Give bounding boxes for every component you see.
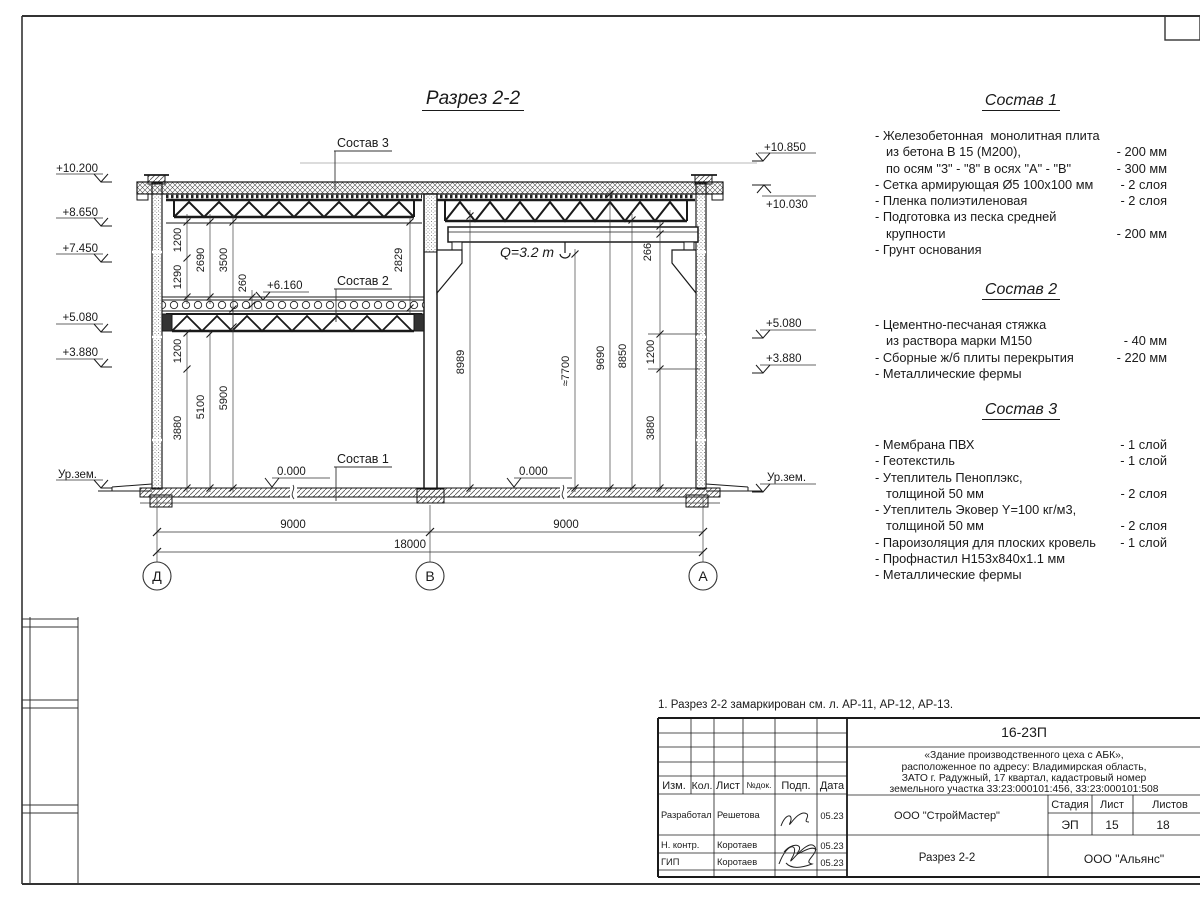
elevation-mark: Ур.зем.	[752, 472, 816, 492]
drawing-title: Разрез 2-2	[378, 88, 568, 110]
hollow-core-slab	[162, 300, 424, 311]
elevation-mark: +10.030	[752, 185, 816, 211]
elevation-mark: +5.080	[56, 312, 112, 332]
list-item: толщиной 50 мм- 2 слоя	[875, 518, 1167, 534]
roof-slab	[137, 182, 723, 194]
footing-right	[686, 495, 708, 507]
axis-bubbles: Д В А	[143, 562, 717, 590]
svg-text:+7.450: +7.450	[63, 243, 99, 255]
list-item: - Железобетонная монолитная плита	[875, 128, 1167, 144]
mezzanine-truss	[162, 314, 424, 331]
elevation-mark: +3.880	[56, 347, 112, 367]
project-desc-line: ЗАТО г. Радужный, 17 квартал, кадастровы…	[902, 773, 1147, 784]
list-item: - Сборные ж/б плиты перекрытия- 220 мм	[875, 350, 1167, 366]
axis-label-a: А	[698, 568, 708, 584]
corbel-right	[672, 250, 696, 293]
dims-bottom: 9000 9000 18000	[153, 497, 707, 562]
svg-text:8850: 8850	[617, 344, 629, 368]
title-block: 16-23П «Здание производственного цеха с …	[658, 718, 1200, 877]
sostav-3-list: - Мембрана ПВХ- 1 слой - Геотекстиль- 1 …	[875, 437, 1167, 584]
svg-text:Ур.зем.: Ур.зем.	[58, 469, 97, 481]
project-desc-line: земельного участка 33:23:000101:456, 33:…	[890, 784, 1159, 795]
org-client: ООО "Альянс"	[1084, 852, 1164, 866]
list-item: - Пароизоляция для плоских кровель- 1 сл…	[875, 535, 1167, 551]
svg-text:Состав 1: Состав 1	[337, 452, 389, 466]
svg-text:8989: 8989	[455, 350, 467, 374]
svg-text:+8.650: +8.650	[63, 207, 99, 219]
sheets-total: 18	[1156, 818, 1170, 832]
stage-value: ЭП	[1061, 818, 1078, 832]
svg-text:0.000: 0.000	[519, 466, 548, 478]
row-name: Коротаев	[717, 840, 757, 850]
row-name: Коротаев	[717, 857, 757, 867]
list-item: толщиной 50 мм- 2 слоя	[875, 486, 1167, 502]
svg-text:3880: 3880	[172, 416, 184, 440]
list-item: по осям "3" - "8" в осях "А" - "В"- 300 …	[875, 161, 1167, 177]
list-item: - Геотекстиль- 1 слой	[875, 453, 1167, 469]
corbel-center	[437, 250, 462, 293]
crane-beam	[437, 227, 698, 293]
crane-hook-icon	[560, 242, 570, 258]
svg-text:+5.080: +5.080	[63, 312, 99, 324]
row-role: Н. контр.	[661, 840, 699, 850]
svg-text:2690: 2690	[195, 248, 207, 272]
stage-col: Лист	[1100, 799, 1124, 811]
svg-text:1200: 1200	[645, 340, 657, 364]
col-izm: Изм.	[662, 780, 686, 792]
list-item: - Металлические фермы	[875, 366, 1167, 382]
svg-text:+5.080: +5.080	[766, 318, 802, 330]
dims-lower-left: 1200 3880 5100 5900	[172, 306, 237, 493]
svg-text:+3.880: +3.880	[766, 353, 802, 365]
svg-text:Ур.зем.: Ур.зем.	[767, 472, 806, 484]
sostav-1-list: - Железобетонная монолитная плита из бет…	[875, 128, 1167, 258]
col-list: Лист	[716, 780, 740, 792]
elevation-mark: +8.650	[56, 207, 112, 226]
sostav-2-list: - Цементно-песчаная стяжка из раствора м…	[875, 317, 1167, 382]
project-desc-line: расположенное по адресу: Владимирская об…	[901, 761, 1146, 773]
svg-text:5900: 5900	[218, 386, 230, 410]
drawing-title-text: Разрез 2-2	[422, 88, 524, 111]
crane-capacity-label: Q=3.2 т	[500, 244, 554, 260]
svg-text:18000: 18000	[394, 539, 426, 551]
list-item: - Профнастил Н153х840х1.1 мм	[875, 551, 1167, 567]
list-item: - Утеплитель Эковер Y=100 кг/м3,	[875, 502, 1167, 518]
svg-text:+3.880: +3.880	[63, 347, 99, 359]
elevation-mark: +10.200	[56, 163, 112, 182]
list-item: - Утеплитель Пеноплэкс,	[875, 470, 1167, 486]
svg-text:266: 266	[642, 243, 654, 261]
col-podp: Подп.	[781, 780, 810, 792]
svg-text:1200: 1200	[172, 339, 184, 363]
list-item: - Пленка полиэтиленовая- 2 слоя	[875, 193, 1167, 209]
svg-text:+10.030: +10.030	[766, 199, 808, 211]
svg-text:5100: 5100	[195, 395, 207, 419]
roof-truss-left	[166, 200, 422, 223]
elevation-marks-right: +10.850 +10.030 +5.080 +3.880 Ур.зем.	[752, 142, 816, 492]
sheet-title: Разрез 2-2	[919, 852, 975, 864]
list-item: - Сетка армирующая Ø5 100х100 мм- 2 слоя	[875, 177, 1167, 193]
elevation-mark: Ур.зем.	[56, 469, 112, 488]
svg-text:+10.850: +10.850	[764, 142, 806, 154]
project-desc-line: «Здание производственного цеха с АБК»,	[924, 750, 1123, 761]
svg-text:Состав 3: Состав 3	[337, 136, 389, 150]
sostav-3-title: Состав 3	[875, 401, 1167, 419]
mezzanine	[162, 297, 424, 331]
axis-label-d: Д	[152, 568, 162, 584]
sostav-1-block: Состав 1 - Железобетонная монолитная пли…	[875, 92, 1167, 258]
list-item: - Цементно-песчаная стяжка	[875, 317, 1167, 333]
stage-col: Стадия	[1051, 799, 1089, 811]
col-ndok: №док.	[747, 780, 772, 790]
list-item: - Металлические фермы	[875, 567, 1167, 583]
row-date: 05.23	[820, 841, 843, 851]
svg-text:3880: 3880	[645, 416, 657, 440]
sostav-1-title: Состав 1	[875, 92, 1167, 110]
elevation-marks-left: +10.200 +8.650 +7.450 +5.080 +3.880	[56, 163, 112, 488]
sheet-note: 1. Разрез 2-2 замаркирован см. л. АР-11,…	[658, 699, 953, 711]
doc-number: 16-23П	[1001, 724, 1047, 740]
footing-left	[150, 495, 172, 507]
svg-text:Состав 2: Состав 2	[337, 274, 389, 288]
sheet-number: 15	[1105, 818, 1119, 832]
list-item: из бетона В 15 (М200),- 200 мм	[875, 144, 1167, 160]
level-zero-left-mark: 0.000	[265, 466, 330, 487]
col-kol: Кол.	[692, 780, 713, 792]
roof-truss-right	[437, 200, 695, 221]
row-name: Решетова	[717, 810, 760, 820]
svg-text:3500: 3500	[218, 248, 230, 272]
sostav-3-block: Состав 3 - Мембрана ПВХ- 1 слой - Геотек…	[875, 401, 1167, 584]
list-item: крупности- 200 мм	[875, 226, 1167, 242]
row-date: 05.23	[820, 811, 843, 821]
org-designer: ООО "СтройМастер"	[894, 810, 1000, 822]
level-zero-right-mark: 0.000	[507, 466, 572, 487]
svg-text:1290: 1290	[172, 265, 184, 289]
svg-text:≈7700: ≈7700	[560, 356, 572, 387]
row-role: Разработал	[661, 810, 712, 820]
frame-corner-box	[1165, 16, 1200, 40]
svg-text:1200: 1200	[172, 228, 184, 252]
svg-text:9000: 9000	[280, 519, 306, 531]
sostav-2-title: Состав 2	[875, 281, 1167, 299]
elevation-mark: +3.880	[752, 353, 816, 373]
list-item: - Мембрана ПВХ- 1 слой	[875, 437, 1167, 453]
signature	[779, 813, 816, 867]
svg-text:+6.160: +6.160	[267, 280, 303, 292]
svg-text:0.000: 0.000	[277, 466, 306, 478]
stage-col: Листов	[1152, 799, 1188, 811]
col-data: Дата	[820, 780, 845, 792]
svg-text:9000: 9000	[553, 519, 579, 531]
svg-text:260: 260	[237, 274, 249, 292]
list-item: - Подготовка из песка средней	[875, 209, 1167, 225]
list-item: - Грунт основания	[875, 242, 1167, 258]
footing-center	[417, 489, 444, 503]
sostav-2-block: Состав 2 - Цементно-песчаная стяжка из р…	[875, 281, 1167, 382]
axis-label-v: В	[425, 568, 434, 584]
elevation-mark: +5.080	[752, 318, 816, 338]
filing-strip	[22, 617, 78, 884]
list-item: из раствора марки М150- 40 мм	[875, 333, 1167, 349]
svg-text:2829: 2829	[393, 248, 405, 272]
svg-text:9690: 9690	[595, 346, 607, 370]
row-date: 05.23	[820, 858, 843, 868]
elevation-mark: +7.450	[56, 243, 112, 262]
elevation-mark: +10.850	[752, 142, 816, 161]
svg-text:+10.200: +10.200	[56, 163, 98, 175]
drawing-sheet: Q=3.2 т +10.200 +8.650	[0, 0, 1200, 900]
row-role: ГИП	[661, 857, 679, 867]
